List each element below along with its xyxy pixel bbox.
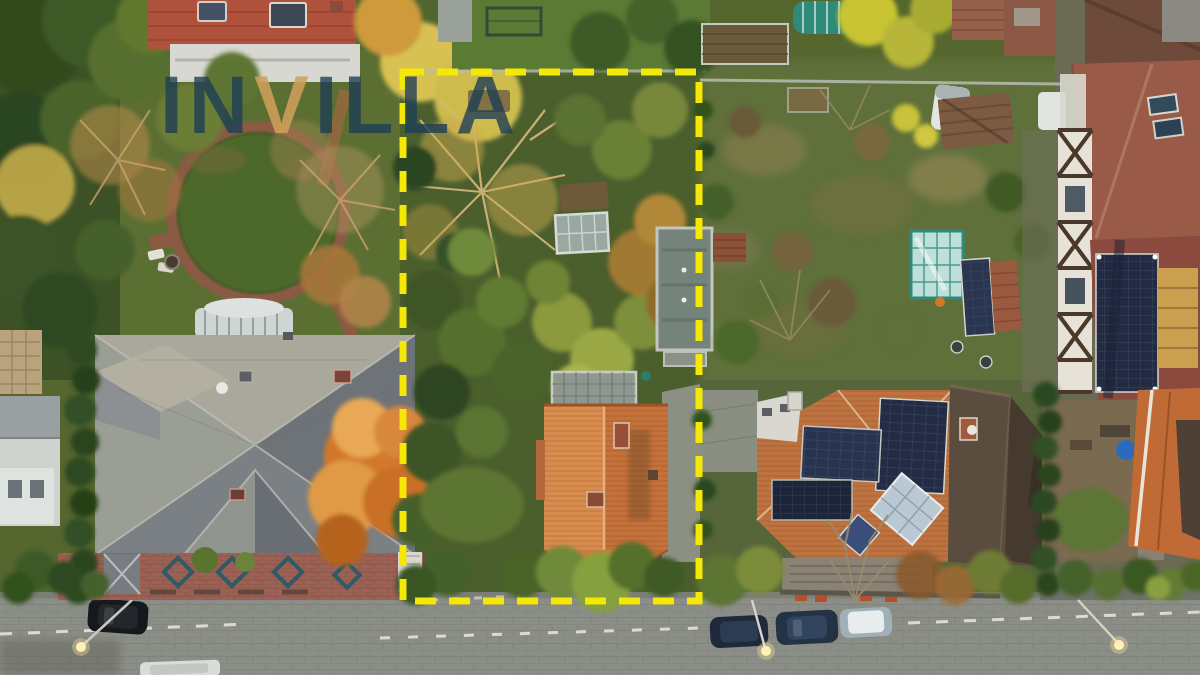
small-greenhouse — [555, 213, 609, 254]
gravel-path — [1022, 130, 1060, 392]
flat-roof-outbuilding — [657, 228, 712, 366]
chimney — [788, 392, 802, 410]
white-car — [839, 607, 892, 639]
scene-svg — [0, 0, 1200, 675]
bottom-right-building — [1128, 388, 1200, 560]
eave-strip — [536, 440, 545, 500]
glass-greenhouse — [911, 231, 963, 298]
water-barrel — [641, 371, 651, 381]
brick-path — [150, 238, 178, 243]
lower-roof-solar — [1090, 236, 1200, 400]
solar-shed — [960, 256, 1021, 336]
garden-bed — [468, 90, 510, 112]
black-car — [87, 598, 149, 635]
concrete-patch — [1162, 0, 1200, 42]
half-timbered-wall — [1058, 130, 1092, 392]
garage-flat-roof — [552, 371, 651, 408]
gazebo-roof — [104, 554, 140, 594]
bin — [980, 356, 992, 368]
roof-window — [1148, 94, 1178, 115]
garden-bed — [559, 181, 609, 211]
bin — [951, 341, 963, 353]
aerial-property-photo: INVILLA — [0, 0, 1200, 675]
chimney — [614, 423, 629, 448]
blue-tarp — [1116, 440, 1136, 460]
concrete-apron — [700, 390, 758, 472]
garden-shed-roof — [438, 0, 472, 42]
satellite-dish — [216, 382, 228, 394]
chimney — [587, 492, 604, 507]
navy-car-2 — [775, 609, 839, 645]
roof-window — [1153, 118, 1183, 139]
orange-item — [935, 297, 945, 307]
conservatory-glass-roof — [195, 298, 293, 338]
